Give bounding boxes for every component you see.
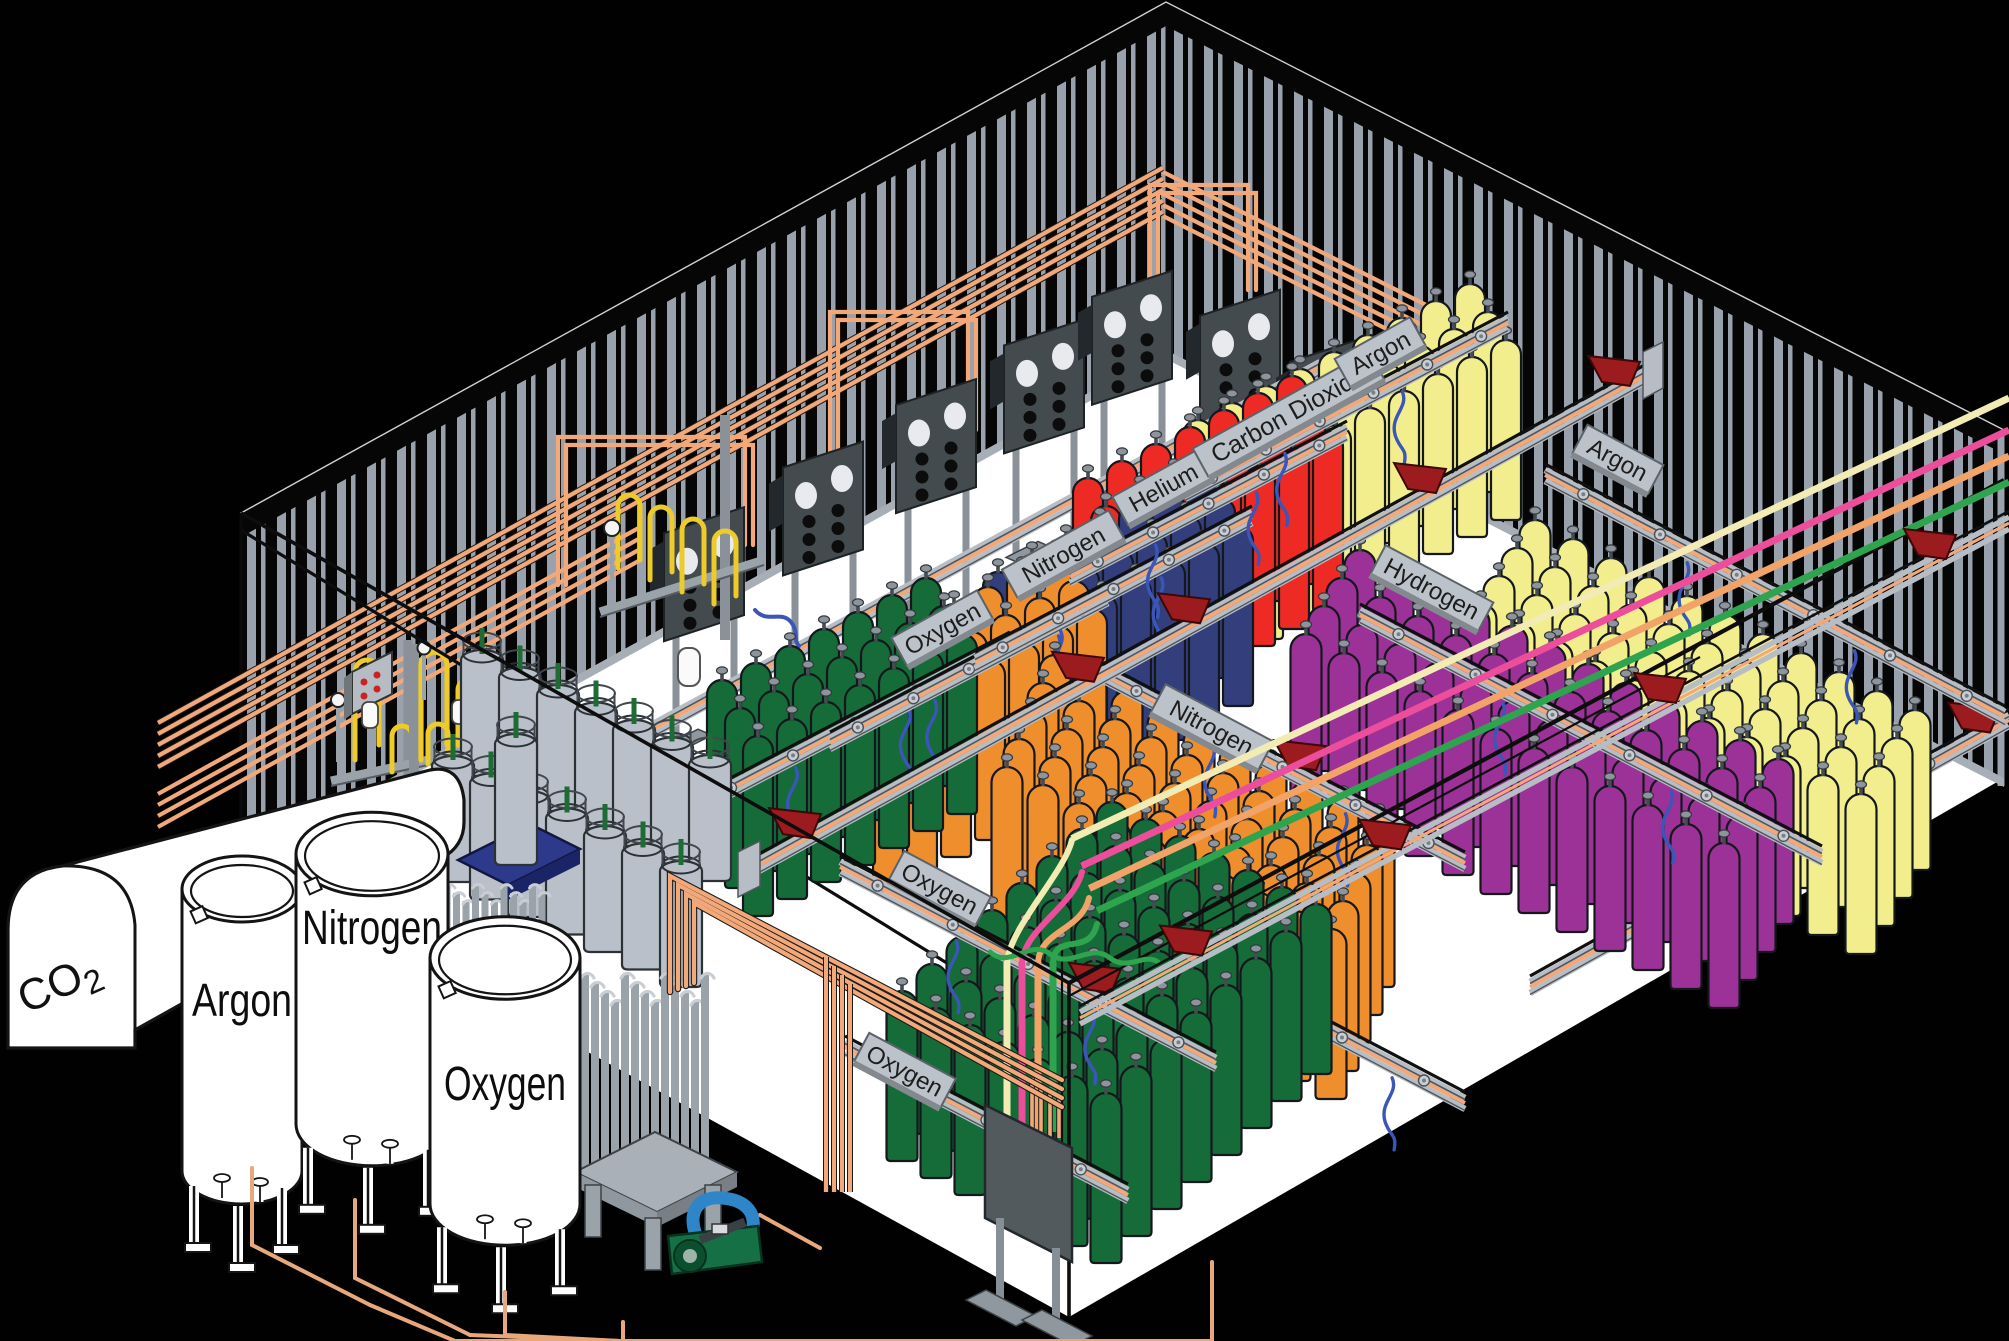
svg-text:Oxygen: Oxygen xyxy=(444,1058,566,1111)
svg-text:Nitrogen: Nitrogen xyxy=(302,902,442,955)
svg-text:Argon: Argon xyxy=(192,974,292,1026)
